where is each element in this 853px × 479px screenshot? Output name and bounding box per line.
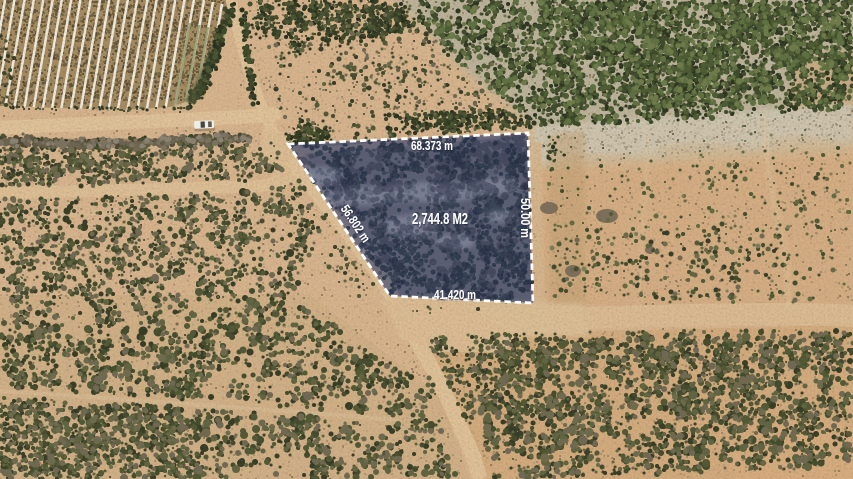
svg-text:41.420 m: 41.420 m xyxy=(434,287,476,302)
svg-text:68.373 m: 68.373 m xyxy=(411,138,453,153)
svg-text:2,744.8 M2: 2,744.8 M2 xyxy=(412,211,468,228)
svg-text:50.00 m: 50.00 m xyxy=(518,198,533,238)
